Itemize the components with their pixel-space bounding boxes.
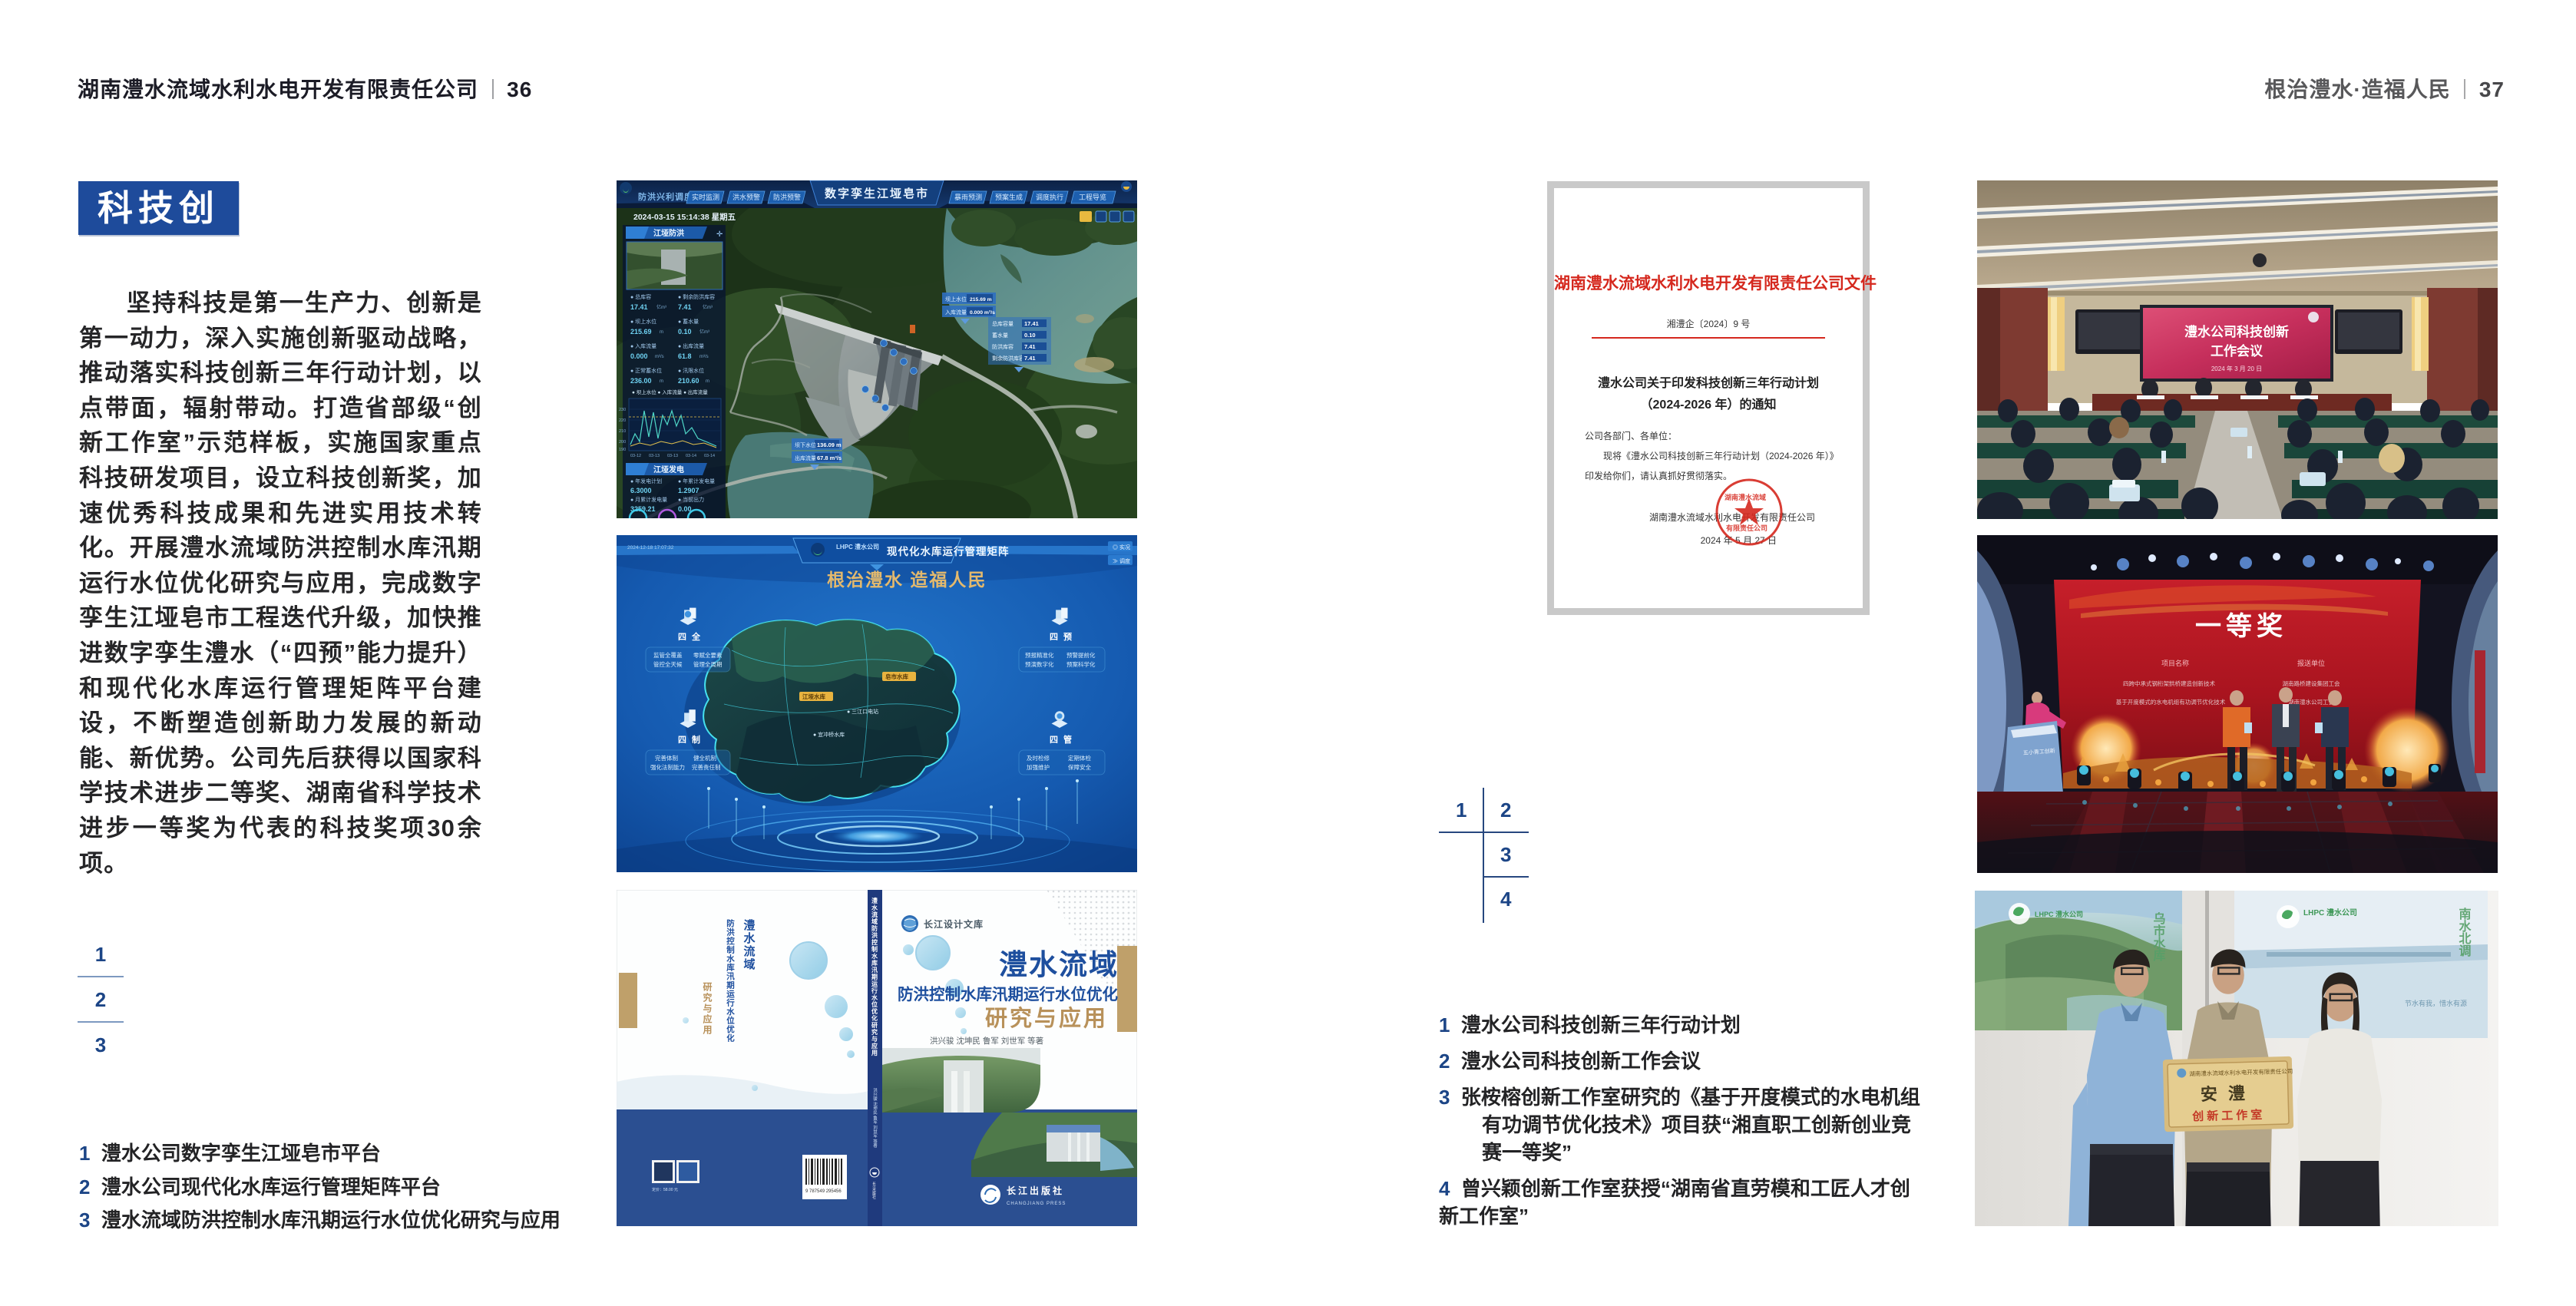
svg-text:坝上水位: 坝上水位 xyxy=(945,296,967,303)
svg-text:7.41: 7.41 xyxy=(1024,343,1036,350)
svg-text:报送单位: 报送单位 xyxy=(2297,659,2325,667)
svg-text:总库容量: 总库容量 xyxy=(992,320,1014,327)
svg-text:洪兴骏 沈坤民 鲁军 刘世军 等著: 洪兴骏 沈坤民 鲁军 刘世军 等著 xyxy=(872,1087,878,1149)
svg-text:1.2907: 1.2907 xyxy=(678,487,699,494)
svg-text:安澧: 安澧 xyxy=(2201,1083,2257,1104)
svg-text:完善责任制: 完善责任制 xyxy=(692,763,721,771)
svg-text:数字孪生江垭皂市: 数字孪生江垭皂市 xyxy=(825,187,929,200)
svg-text:四 管: 四 管 xyxy=(1050,734,1073,745)
svg-text:工作会议: 工作会议 xyxy=(2211,343,2264,359)
svg-text:坝下水位: 坝下水位 xyxy=(795,441,816,448)
svg-text:长江出版社: 长江出版社 xyxy=(872,1181,877,1200)
svg-text:210.60: 210.60 xyxy=(678,377,699,385)
svg-text:◎ 实况: ◎ 实况 xyxy=(1113,544,1130,551)
svg-text:CHANGJIANG PRESS: CHANGJIANG PRESS xyxy=(1007,1202,1066,1206)
svg-text:LHPC 澧水公司: LHPC 澧水公司 xyxy=(2035,910,2083,918)
svg-text:● 正常蓄水位: ● 正常蓄水位 xyxy=(630,367,662,374)
svg-text:亿m³: 亿m³ xyxy=(699,329,709,335)
svg-text:防洪库容: 防洪库容 xyxy=(992,343,1014,350)
svg-text:南水北调: 南水北调 xyxy=(2457,907,2472,957)
svg-text:预警提前化: 预警提前化 xyxy=(1066,651,1096,659)
svg-text:61.8: 61.8 xyxy=(678,352,692,360)
svg-text:03-12: 03-12 xyxy=(630,454,641,458)
svg-text:m³/s: m³/s xyxy=(655,355,664,359)
svg-text:0.10: 0.10 xyxy=(678,328,692,336)
svg-text:● 月累计发电量: ● 月累计发电量 xyxy=(630,496,667,503)
svg-text:四跨中承式钢桁架拱桥建造创新技术: 四跨中承式钢桁架拱桥建造创新技术 xyxy=(2123,679,2215,687)
svg-text:210: 210 xyxy=(619,429,626,434)
svg-text:136.09 m: 136.09 m xyxy=(817,441,842,448)
svg-text:有限责任公司: 有限责任公司 xyxy=(1726,524,1767,532)
svg-text:研究与应用: 研究与应用 xyxy=(985,1005,1108,1031)
svg-text:长江设计文库: 长江设计文库 xyxy=(924,918,984,930)
svg-text:● 蓄水量: ● 蓄水量 xyxy=(678,318,699,325)
svg-text:● 剩余防洪库容: ● 剩余防洪库容 xyxy=(678,293,715,300)
svg-text:230: 230 xyxy=(619,408,626,412)
svg-text:湖南路桥建设集团工会: 湖南路桥建设集团工会 xyxy=(2283,679,2340,687)
svg-text:江垭水库: 江垭水库 xyxy=(802,693,825,700)
svg-text:防洪控制水库汛期运行水位优化: 防洪控制水库汛期运行水位优化 xyxy=(898,985,1118,1003)
svg-text:215.69 m: 215.69 m xyxy=(970,297,992,303)
svg-text:项目名称: 项目名称 xyxy=(2161,659,2189,667)
svg-text:220: 220 xyxy=(619,418,626,423)
svg-text:暴雨预测: 暴雨预测 xyxy=(954,193,982,201)
svg-text:0.000: 0.000 xyxy=(630,352,648,360)
svg-text:防洪兴利调度: 防洪兴利调度 xyxy=(638,191,693,202)
svg-text:澧水流域: 澧水流域 xyxy=(742,918,756,971)
svg-text:节水有我，惜水有源: 节水有我，惜水有源 xyxy=(2405,999,2467,1007)
svg-text:管理全周期: 管理全周期 xyxy=(693,660,723,668)
svg-text:亿m³: 亿m³ xyxy=(703,304,713,310)
svg-text:皂市水库: 皂市水库 xyxy=(885,673,908,680)
svg-text:● 坝上水位 ● 入库流量 ● 出库流量: ● 坝上水位 ● 入库流量 ● 出库流量 xyxy=(632,388,708,395)
svg-text:2024-03-15 15:14:38 星期五: 2024-03-15 15:14:38 星期五 xyxy=(633,212,736,222)
svg-text:定价：58.00 元: 定价：58.00 元 xyxy=(652,1187,678,1192)
svg-text:健全机制: 健全机制 xyxy=(693,754,716,762)
svg-text:现代化水库运行管理矩阵: 现代化水库运行管理矩阵 xyxy=(887,545,1010,557)
svg-text:根治澧水 造福人民: 根治澧水 造福人民 xyxy=(827,570,987,590)
svg-text:67.8 m³/s: 67.8 m³/s xyxy=(817,455,842,461)
svg-text:2024-12-18 17:07:32: 2024-12-18 17:07:32 xyxy=(627,545,674,551)
svg-text:● 坝上水位: ● 坝上水位 xyxy=(630,318,656,325)
svg-text:● 入库流量: ● 入库流量 xyxy=(630,342,656,349)
svg-text:03-14: 03-14 xyxy=(704,454,715,458)
svg-text:入库流量: 入库流量 xyxy=(945,309,967,316)
svg-text:0.00: 0.00 xyxy=(678,505,692,513)
svg-text:● 年发电计划: ● 年发电计划 xyxy=(630,478,662,484)
svg-text:● 年累计发电量: ● 年累计发电量 xyxy=(678,478,715,484)
svg-text:湖南澧水流域: 湖南澧水流域 xyxy=(1724,493,1766,501)
svg-text:四 制: 四 制 xyxy=(678,734,702,745)
svg-text:● 当前出力: ● 当前出力 xyxy=(678,496,704,503)
svg-text:≫ 调度: ≫ 调度 xyxy=(1113,557,1130,564)
svg-text:完善体制: 完善体制 xyxy=(655,754,678,762)
svg-text:四 预: 四 预 xyxy=(1050,631,1073,642)
svg-text:236.00: 236.00 xyxy=(630,377,652,385)
svg-text:m³/s: m³/s xyxy=(699,355,709,359)
svg-text:江垭发电: 江垭发电 xyxy=(653,465,684,474)
svg-text:乌市水库: 乌市水库 xyxy=(2151,911,2166,962)
svg-text:调度执行: 调度执行 xyxy=(1036,193,1063,201)
svg-text:剩余防洪库容: 剩余防洪库容 xyxy=(992,355,1024,362)
svg-text:洪兴骏 沈坤民 鲁军 刘世军 等著: 洪兴骏 沈坤民 鲁军 刘世军 等著 xyxy=(930,1036,1043,1046)
svg-text:预案生成: 预案生成 xyxy=(995,193,1023,201)
svg-text:零赋全要素: 零赋全要素 xyxy=(693,651,723,659)
svg-text:基于开度模式的水电机组有功调节优化技术: 基于开度模式的水电机组有功调节优化技术 xyxy=(2116,698,2226,706)
svg-text:定期体检: 定期体检 xyxy=(1068,754,1091,762)
svg-text:长江出版社: 长江出版社 xyxy=(1007,1185,1064,1196)
svg-text:四 全: 四 全 xyxy=(678,631,702,642)
svg-text:预演数字化: 预演数字化 xyxy=(1025,660,1054,668)
svg-text:● 总库容: ● 总库容 xyxy=(630,293,651,300)
svg-text:强化法制能力: 强化法制能力 xyxy=(650,763,685,771)
svg-text:洪水预警: 洪水预警 xyxy=(732,193,760,201)
svg-text:03-14: 03-14 xyxy=(686,454,696,458)
svg-text:防洪预警: 防洪预警 xyxy=(773,193,801,201)
svg-text:● 出库流量: ● 出库流量 xyxy=(678,342,704,349)
svg-text:0.000 m³/s: 0.000 m³/s xyxy=(970,310,995,316)
svg-text:及时检修: 及时检修 xyxy=(1027,754,1050,762)
svg-text:出库流量: 出库流量 xyxy=(795,455,816,461)
svg-text:管控全天候: 管控全天候 xyxy=(653,660,683,668)
svg-text:实时监测: 实时监测 xyxy=(692,193,719,201)
svg-text:澧水公司科技创新: 澧水公司科技创新 xyxy=(2184,324,2289,339)
svg-text:蓄水量: 蓄水量 xyxy=(992,332,1008,339)
svg-text:● 汛限水位: ● 汛限水位 xyxy=(678,367,704,374)
svg-text:预案科学化: 预案科学化 xyxy=(1066,660,1096,668)
svg-text:03-13: 03-13 xyxy=(649,454,660,458)
svg-text:03-13: 03-13 xyxy=(667,454,678,458)
svg-text:17.41: 17.41 xyxy=(630,303,648,311)
svg-text:200: 200 xyxy=(619,440,626,445)
svg-text:● 三江口电站: ● 三江口电站 xyxy=(847,708,878,715)
svg-text:保障安全: 保障安全 xyxy=(1068,763,1091,771)
svg-text:创新工作室: 创新工作室 xyxy=(2191,1108,2265,1124)
svg-text:17.41: 17.41 xyxy=(1024,320,1039,327)
svg-text:● 宜冲桥水库: ● 宜冲桥水库 xyxy=(813,731,845,738)
svg-text:防洪控制水库汛期运行水位优化: 防洪控制水库汛期运行水位优化 xyxy=(726,918,735,1043)
svg-text:7.41: 7.41 xyxy=(678,303,692,311)
svg-text:6.3000: 6.3000 xyxy=(630,487,652,494)
svg-text:工程导览: 工程导览 xyxy=(1079,193,1106,201)
svg-text:监管全覆盖: 监管全覆盖 xyxy=(653,651,683,659)
svg-text:LHPC 澧水公司: LHPC 澧水公司 xyxy=(836,543,879,551)
svg-text:✛: ✛ xyxy=(716,230,723,239)
svg-text:澧水流域: 澧水流域 xyxy=(999,949,1119,980)
svg-text:215.69: 215.69 xyxy=(630,328,652,336)
svg-text:m: m xyxy=(660,379,663,384)
svg-text:研究与应用: 研究与应用 xyxy=(702,982,713,1036)
svg-text:亿m³: 亿m³ xyxy=(656,304,666,310)
svg-text:0.10: 0.10 xyxy=(1024,332,1036,339)
svg-text:190: 190 xyxy=(619,448,626,452)
svg-text:加强维护: 加强维护 xyxy=(1027,763,1050,771)
svg-text:7.41: 7.41 xyxy=(1024,355,1036,362)
svg-text:一等奖: 一等奖 xyxy=(2195,612,2287,641)
svg-text:澧水流域防洪控制水库汛期运行水位优化研究与应用: 澧水流域防洪控制水库汛期运行水位优化研究与应用 xyxy=(871,897,878,1056)
svg-text:9 787549 295456: 9 787549 295456 xyxy=(805,1189,842,1194)
svg-text:预报精准化: 预报精准化 xyxy=(1025,651,1054,659)
svg-text:m: m xyxy=(660,330,663,335)
svg-text:m: m xyxy=(706,379,709,384)
svg-text:江垭防洪: 江垭防洪 xyxy=(653,228,684,238)
svg-text:LHPC 澧水公司: LHPC 澧水公司 xyxy=(2303,908,2357,918)
svg-text:2024 年 3 月 20 日: 2024 年 3 月 20 日 xyxy=(2211,365,2262,372)
